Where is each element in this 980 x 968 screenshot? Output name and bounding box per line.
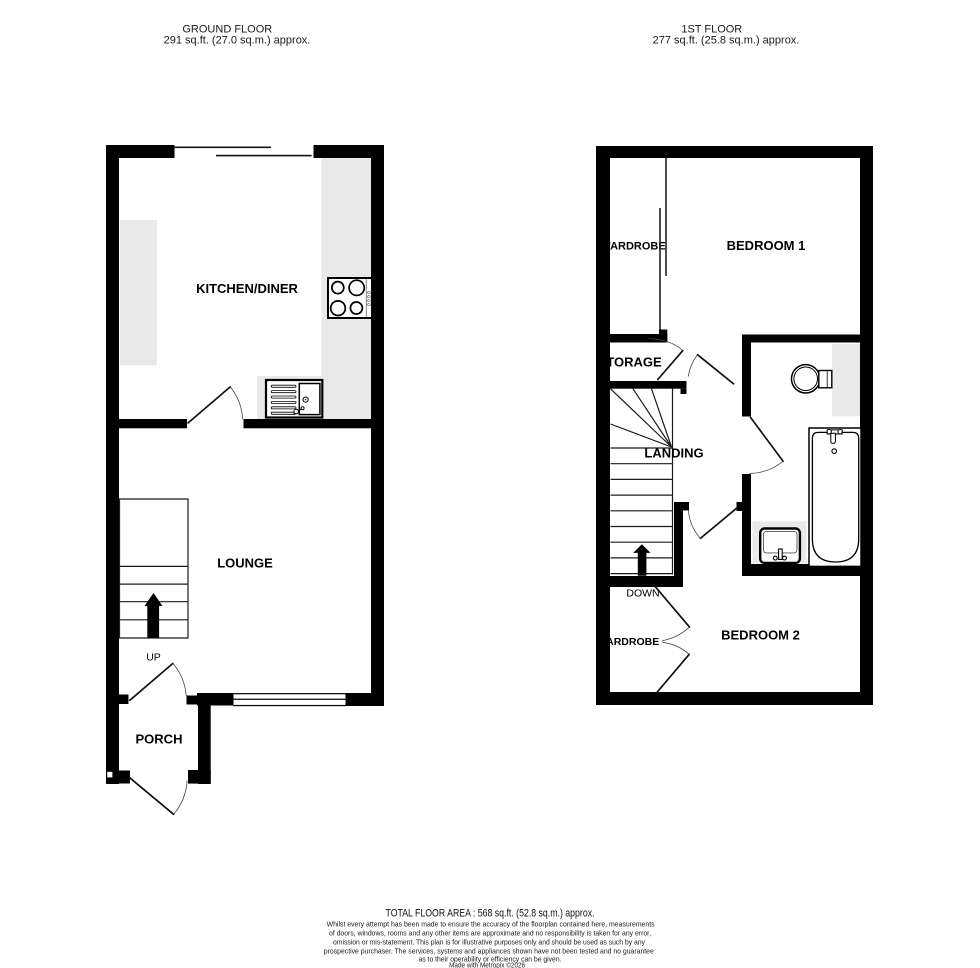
svg-text:KITCHEN/DINER: KITCHEN/DINER bbox=[196, 281, 298, 296]
svg-text:TOTAL FLOOR AREA : 568 sq.ft.: TOTAL FLOOR AREA : 568 sq.ft. (52.8 sq.m… bbox=[386, 908, 595, 920]
svg-text:BEDROOM 2: BEDROOM 2 bbox=[721, 628, 800, 643]
svg-text:291 sq.ft. (27.0 sq.m.) approx: 291 sq.ft. (27.0 sq.m.) approx. bbox=[164, 35, 311, 47]
svg-text:omission or mis-statement. Thi: omission or mis-statement. This plan is … bbox=[333, 937, 645, 946]
svg-text:1ST FLOOR: 1ST FLOOR bbox=[681, 23, 742, 35]
svg-text:277 sq.ft. (25.8 sq.m.) approx: 277 sq.ft. (25.8 sq.m.) approx. bbox=[653, 35, 800, 47]
svg-text:LOUNGE: LOUNGE bbox=[217, 555, 273, 570]
svg-text:LANDING: LANDING bbox=[644, 446, 703, 461]
svg-text:WARDROBE: WARDROBE bbox=[600, 241, 665, 253]
svg-text:UP: UP bbox=[146, 652, 161, 664]
svg-text:of doors, windows, rooms and a: of doors, windows, rooms and any other i… bbox=[329, 929, 651, 938]
svg-text:BEDROOM 1: BEDROOM 1 bbox=[727, 238, 806, 253]
svg-text:Whilst every attempt has been: Whilst every attempt has been made to en… bbox=[327, 920, 655, 929]
svg-text:Made with Metropix ©2026: Made with Metropix ©2026 bbox=[449, 960, 525, 968]
svg-text:DOWN: DOWN bbox=[626, 587, 659, 599]
svg-text:GROUND FLOOR: GROUND FLOOR bbox=[182, 23, 272, 35]
svg-text:PORCH: PORCH bbox=[136, 732, 183, 747]
